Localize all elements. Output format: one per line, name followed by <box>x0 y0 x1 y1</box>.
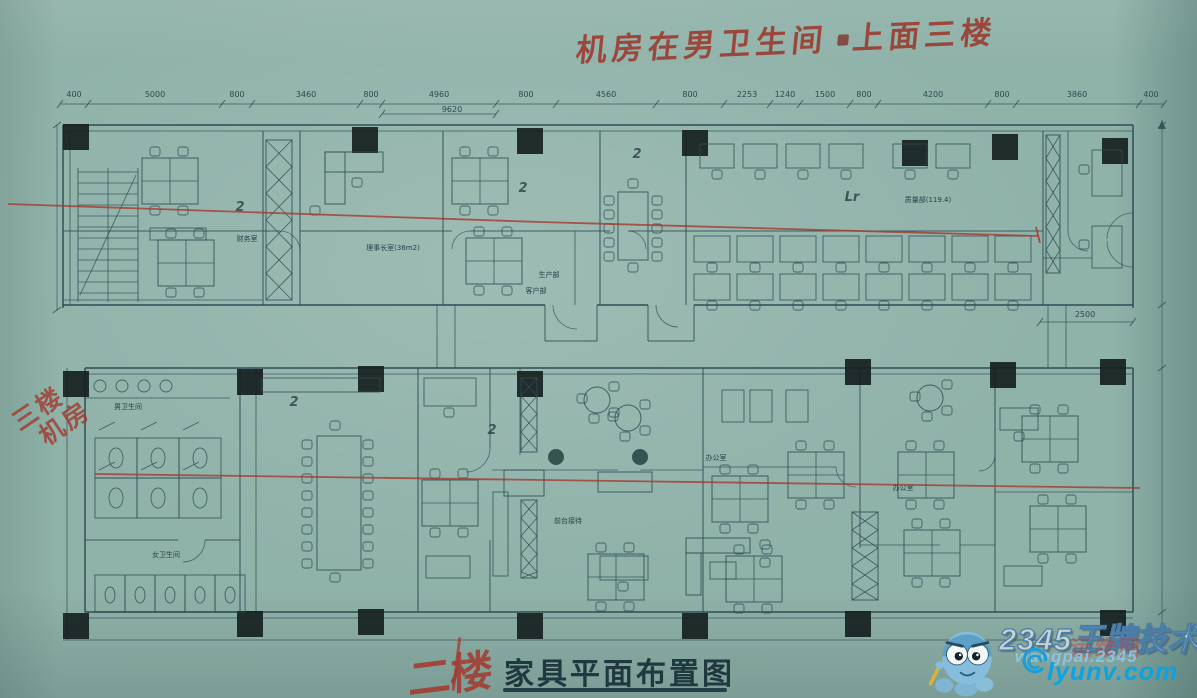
furniture <box>94 144 1122 613</box>
walls <box>63 125 1152 640</box>
svg-text:800: 800 <box>229 90 244 99</box>
svg-text:女卫生间: 女卫生间 <box>152 550 180 559</box>
shafts <box>266 135 1060 600</box>
red-pen-lines <box>8 204 1140 488</box>
svg-text:2: 2 <box>632 147 641 162</box>
dimension-labels: 4005000800346080049608004560800225312401… <box>66 90 1158 319</box>
svg-text:2: 2 <box>235 200 244 215</box>
handwritten-note-top: 机房在男卫生间上面三楼 <box>574 7 999 71</box>
svg-text:4200: 4200 <box>923 90 943 99</box>
drawing-title: 二楼 家具平面布置图 <box>408 641 748 697</box>
svg-text:2253: 2253 <box>737 90 757 99</box>
svg-text:办公室: 办公室 <box>706 453 727 462</box>
handwritten-floor-label: 二楼 <box>408 636 491 698</box>
red-dot-mark <box>837 35 849 47</box>
svg-text:1500: 1500 <box>815 90 835 99</box>
blueprint-photo: 4005000800346080049608004560800225312401… <box>0 0 1197 698</box>
svg-text:客户部: 客户部 <box>526 286 547 295</box>
room-labels: 财务室理事长室(36m2)生产部客户部质量部(119.4)男卫生间女卫生间前台接… <box>114 195 952 559</box>
floor-plan-drawing: 4005000800346080049608004560800225312401… <box>0 0 1197 698</box>
svg-text:400: 400 <box>66 90 81 99</box>
stairs <box>78 168 138 302</box>
svg-text:4960: 4960 <box>429 90 449 99</box>
svg-text:3460: 3460 <box>296 90 316 99</box>
svg-text:3860: 3860 <box>1067 90 1087 99</box>
svg-text:800: 800 <box>856 90 871 99</box>
svg-text:Lr: Lr <box>845 190 861 205</box>
watermark: 2345王牌技术 运维网 wangpai.2345 lyunv.com <box>925 610 1197 698</box>
columns <box>63 124 1128 639</box>
note-top-part2: 上面三楼 <box>851 15 998 56</box>
pen-marks: 22222Lr <box>235 147 860 438</box>
watermark-site: lyunv.com <box>1047 658 1178 687</box>
svg-text:办公室: 办公室 <box>893 483 914 492</box>
svg-text:2: 2 <box>487 423 496 438</box>
svg-text:财务室: 财务室 <box>237 234 258 243</box>
svg-text:男卫生间: 男卫生间 <box>114 402 142 411</box>
note-top-part1: 机房在男卫生间 <box>574 22 829 68</box>
handwritten-note-left: 三楼 机房 <box>8 375 96 459</box>
svg-text:800: 800 <box>518 90 533 99</box>
svg-text:800: 800 <box>994 90 1009 99</box>
svg-text:1240: 1240 <box>775 90 795 99</box>
title-text: 家具平面布置图 <box>504 649 735 693</box>
svg-text:2500: 2500 <box>1075 310 1095 319</box>
svg-text:生产部: 生产部 <box>539 270 560 279</box>
svg-text:质量部(119.4): 质量部(119.4) <box>905 195 952 204</box>
svg-text:理事长室(36m2): 理事长室(36m2) <box>366 243 420 252</box>
svg-text:4560: 4560 <box>596 90 616 99</box>
svg-text:800: 800 <box>682 90 697 99</box>
svg-text:2: 2 <box>289 395 298 410</box>
dimension-lines <box>53 100 1167 640</box>
svg-text:2: 2 <box>518 181 527 196</box>
octopus-mascot-icon <box>925 618 1009 698</box>
title-underline <box>503 688 727 692</box>
svg-text:前台接待: 前台接待 <box>554 516 582 525</box>
svg-text:400: 400 <box>1143 90 1158 99</box>
svg-text:800: 800 <box>363 90 378 99</box>
svg-text:9620: 9620 <box>442 105 462 114</box>
svg-text:5000: 5000 <box>145 90 165 99</box>
door-arcs <box>183 213 1133 562</box>
